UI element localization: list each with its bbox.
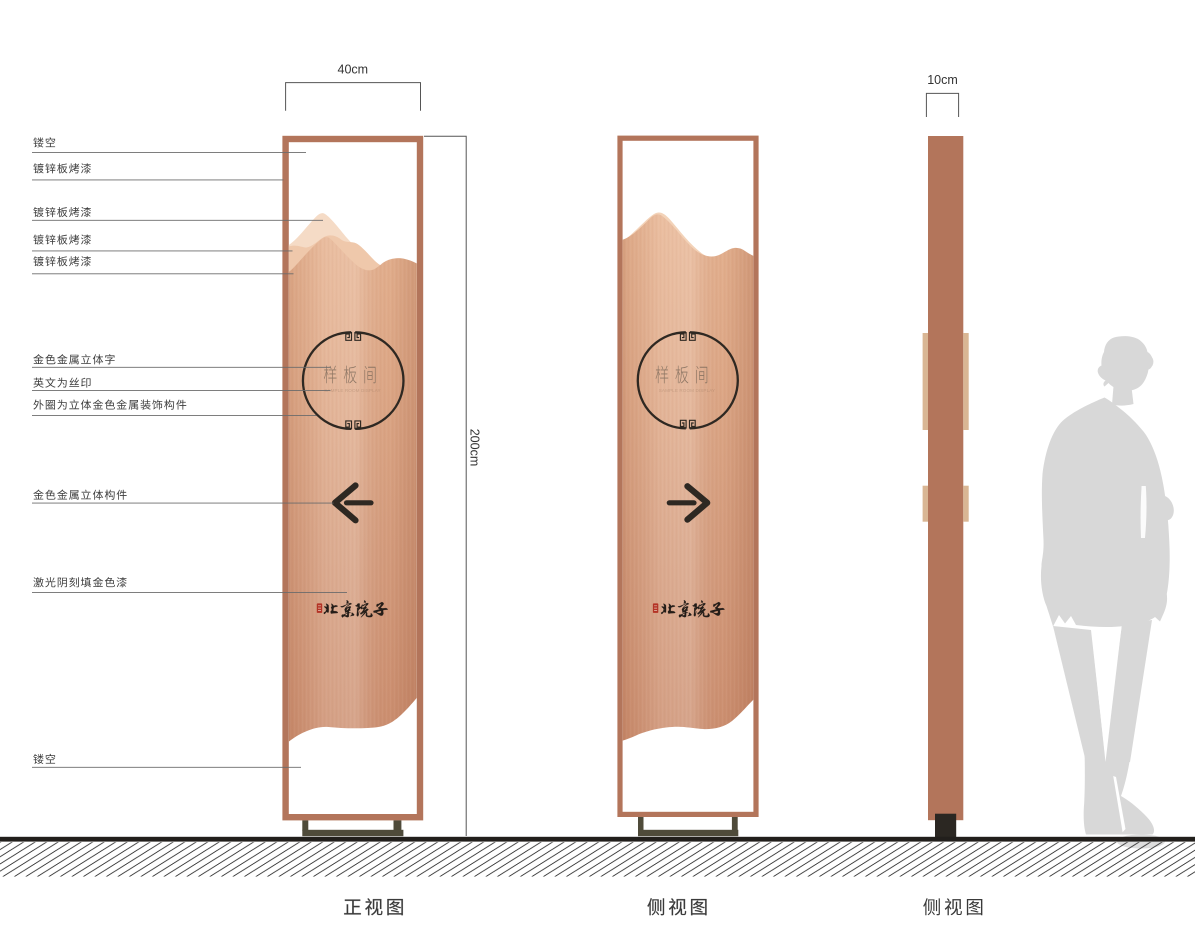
svg-text:SAMPLE ROOM DISPLAY: SAMPLE ROOM DISPLAY (659, 388, 715, 393)
svg-text:40cm: 40cm (338, 63, 369, 77)
svg-text:10cm: 10cm (927, 73, 958, 87)
svg-text:SAMPLE ROOM DISPLAY: SAMPLE ROOM DISPLAY (324, 388, 380, 393)
svg-text:200cm: 200cm (467, 429, 481, 467)
